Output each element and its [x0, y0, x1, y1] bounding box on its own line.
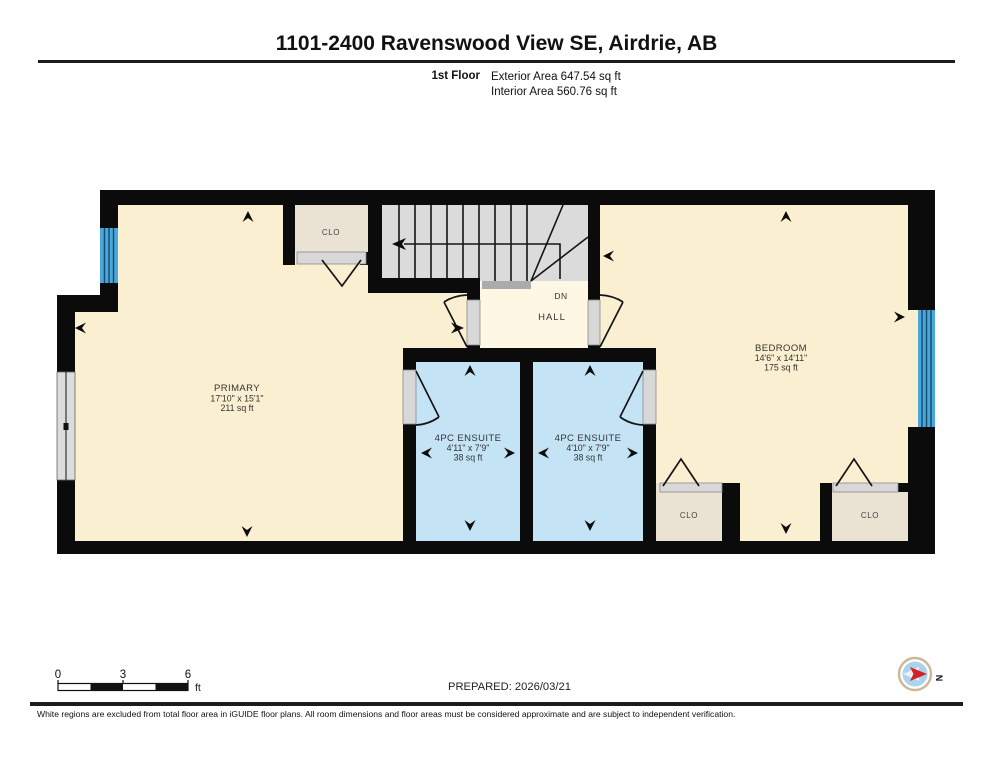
scale-tick-3: 3: [120, 669, 126, 681]
scale-unit: ft: [195, 682, 201, 694]
scale-tick-6: 6: [185, 669, 191, 681]
primary-area: 211 sq ft: [220, 403, 254, 413]
hall-name: HALL: [538, 312, 566, 323]
ensuite-right-area: 38 sq ft: [574, 453, 603, 463]
scale-tick-0: 0: [55, 669, 61, 681]
primary-dims: 17'10" x 15'1": [210, 394, 263, 404]
bedroom-area: 175 sq ft: [764, 363, 798, 373]
stairs-dn-label: DN: [554, 291, 567, 301]
ensuite-right-dims: 4'10" x 7'9": [566, 443, 609, 453]
ensuite-left-area: 38 sq ft: [454, 453, 483, 463]
compass-north-label: N: [934, 675, 944, 682]
closet-bottom-right-label: CLO: [861, 511, 879, 520]
floor-plan: PRIMARY 17'10" x 15'1" 211 sq ft BEDROOM…: [0, 0, 993, 768]
window-left: [100, 228, 118, 283]
hall-floor: [467, 281, 600, 350]
prepared-date: PREPARED: 2026/03/21: [448, 681, 571, 693]
scale-bar: 0 3 6 ft: [55, 669, 201, 694]
bedroom-dims: 14'6" x 14'11": [755, 353, 808, 363]
closet-top-label: CLO: [322, 228, 340, 237]
stair-landing: [482, 281, 531, 289]
window-left-lower: [57, 372, 75, 480]
room-floors: [75, 205, 918, 541]
primary-name: PRIMARY: [214, 383, 260, 394]
stairs-floor: [382, 205, 588, 281]
window-right: [918, 310, 935, 427]
ensuite-left-dims: 4'11" x 7'9": [447, 443, 490, 453]
compass-icon: N: [899, 658, 944, 690]
footer-divider: [30, 702, 963, 706]
disclaimer-text: White regions are excluded from total fl…: [37, 709, 967, 719]
floor-plan-page: 1101-2400 Ravenswood View SE, Airdrie, A…: [0, 0, 993, 768]
closet-bottom-left-label: CLO: [680, 511, 698, 520]
